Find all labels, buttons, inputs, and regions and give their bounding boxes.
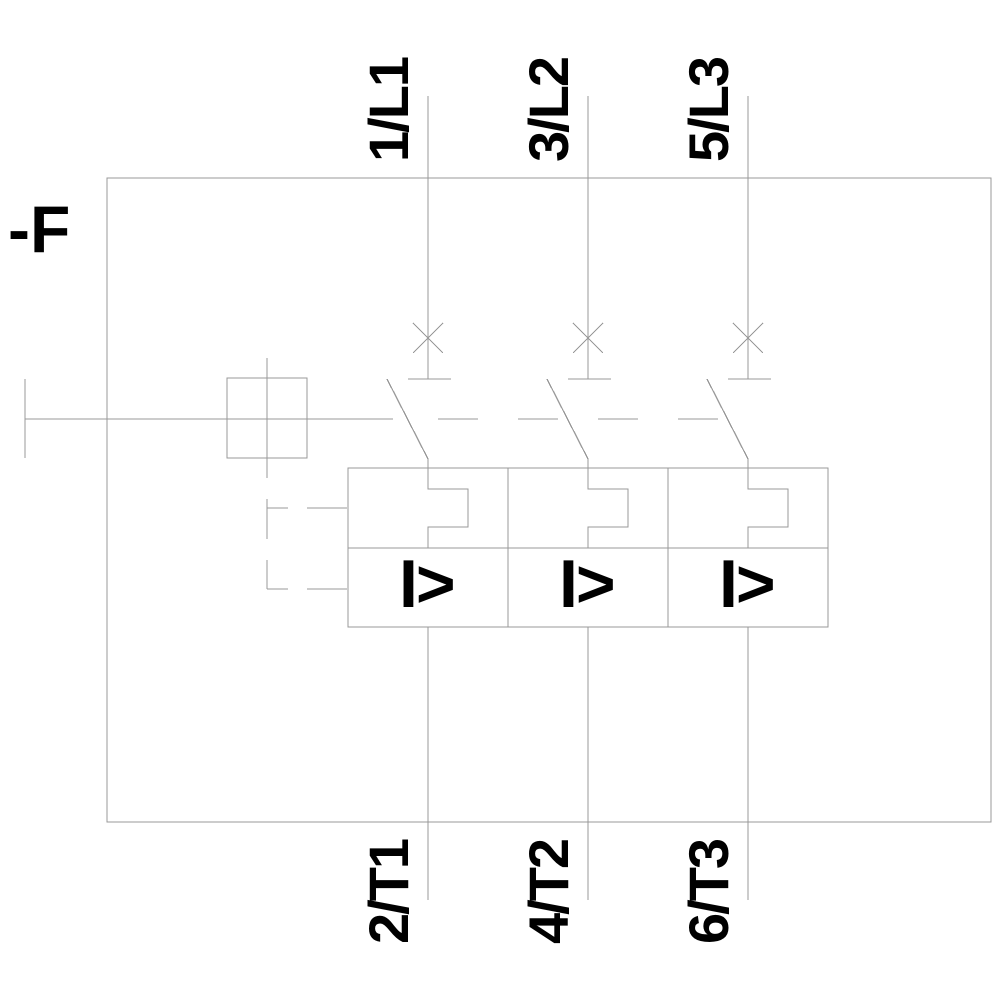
overcurrent-release-icon-pole-3: I> <box>719 550 774 618</box>
terminal-label-6T3: 6/T3 <box>681 840 737 944</box>
terminal-label-5L3: 5/L3 <box>681 58 737 162</box>
operating-handle-icon <box>25 379 393 458</box>
terminal-label-3L2: 3/L2 <box>521 58 577 162</box>
terminal-label-4T2: 4/T2 <box>521 840 577 944</box>
pole-2-thermal-overload-icon <box>588 459 628 548</box>
pole-1-thermal-overload-icon <box>428 459 468 548</box>
schematic-page: -F 1/L1 3/L2 5/L3 2/T1 4/T2 6/T3 I> I> I… <box>0 0 1000 1000</box>
pole-2-breaker-contact-icon <box>547 323 611 459</box>
pole-2 <box>508 96 668 900</box>
pole-1-breaker-contact-icon <box>387 323 451 459</box>
enclosure-outline <box>107 178 991 822</box>
actuator-box <box>227 358 307 478</box>
pole-3 <box>668 96 828 900</box>
overcurrent-release-icon-pole-2: I> <box>559 550 614 618</box>
schematic-linework <box>0 0 1000 1000</box>
overcurrent-release-icon-pole-1: I> <box>399 550 454 618</box>
terminal-label-1L1: 1/L1 <box>361 58 417 162</box>
device-designation-label: -F <box>8 196 70 262</box>
pole-3-thermal-overload-icon <box>748 459 788 548</box>
terminal-label-2T1: 2/T1 <box>361 840 417 944</box>
trip-linkage-dashed <box>267 499 347 589</box>
pole-1 <box>348 96 508 900</box>
pole-3-breaker-contact-icon <box>707 323 771 459</box>
